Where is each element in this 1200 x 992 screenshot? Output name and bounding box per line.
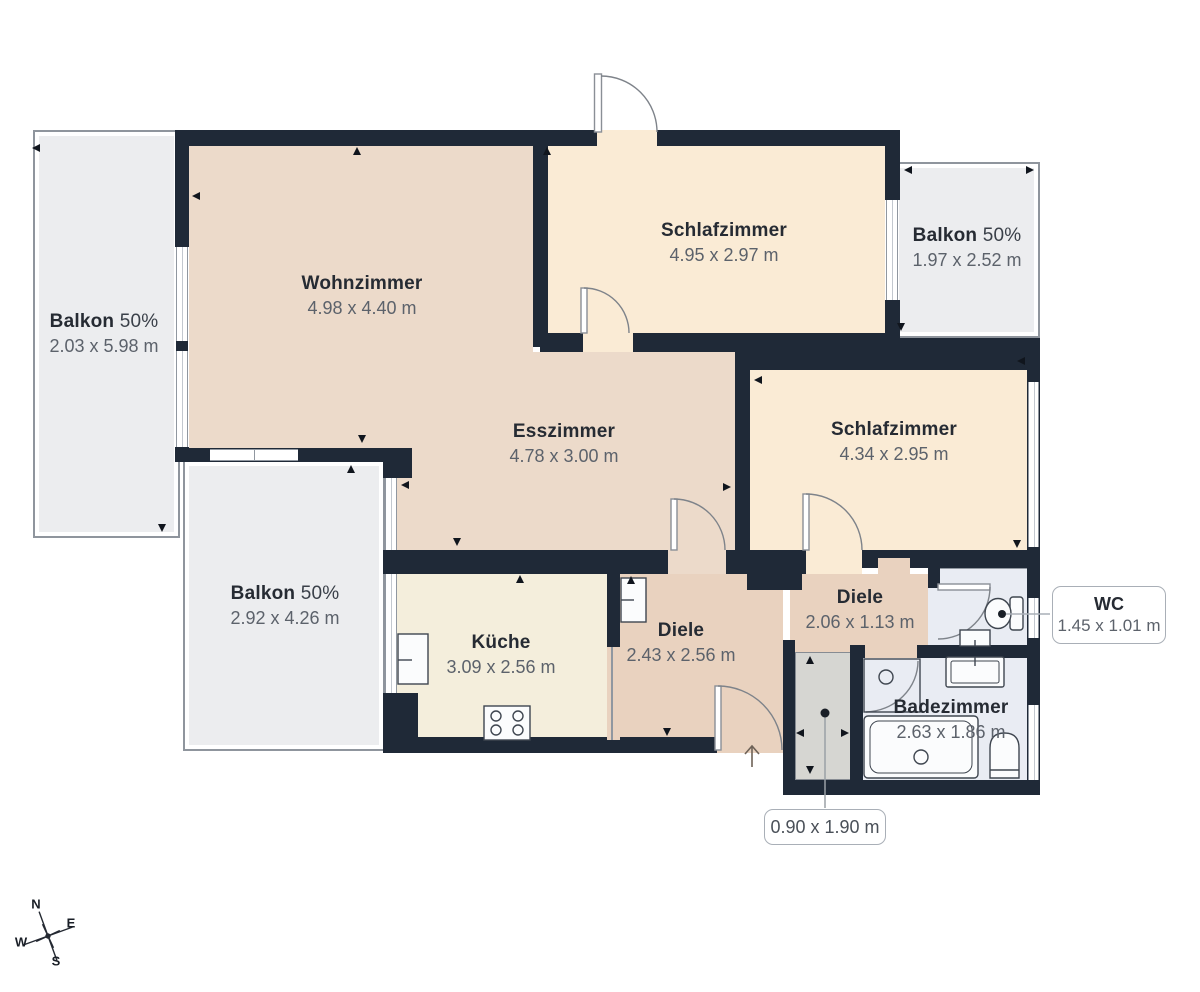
room-dimensions: 4.95 x 2.97 m xyxy=(661,245,787,266)
wall-segment xyxy=(726,550,806,574)
room-name: Schlafzimmer xyxy=(661,220,787,242)
window-divider xyxy=(176,341,188,351)
window xyxy=(1028,598,1039,638)
balcony-word: Balkon xyxy=(913,225,978,246)
door-opening xyxy=(668,550,726,574)
balcony-dimensions: 1.97 x 2.52 m xyxy=(912,250,1021,271)
balcony-door-window xyxy=(886,200,898,300)
label-badezimmer: Badezimmer 2.63 x 1.86 m xyxy=(894,697,1009,743)
room-dimensions: 2.06 x 1.13 m xyxy=(805,612,914,633)
wall-segment xyxy=(850,645,863,785)
room-name: Esszimmer xyxy=(509,421,618,443)
room-wc-floor xyxy=(938,568,1027,645)
compass-north-label: N xyxy=(31,897,40,912)
room-dimensions: 3.09 x 2.56 m xyxy=(446,657,555,678)
wall-segment xyxy=(783,640,795,795)
compass-east-label: E xyxy=(67,916,76,931)
wall-segment xyxy=(928,568,940,588)
label-wohnzimmer: Wohnzimmer 4.98 x 4.40 m xyxy=(302,273,423,319)
door-opening xyxy=(928,588,940,645)
window xyxy=(385,574,397,693)
wall-segment xyxy=(750,352,1040,370)
label-schlafzimmer-1: Schlafzimmer 4.95 x 2.97 m xyxy=(661,220,787,266)
room-dimensions: 4.98 x 4.40 m xyxy=(302,298,423,319)
wall-segment xyxy=(175,130,189,247)
floor-plan: Wohnzimmer 4.98 x 4.40 m Schlafzimmer 4.… xyxy=(0,0,1200,992)
door-top-entry xyxy=(595,74,658,132)
window xyxy=(1028,382,1039,547)
wall-segment xyxy=(383,693,418,740)
wall-segment xyxy=(533,130,548,347)
balcony-name: Balkon 50% xyxy=(230,583,339,605)
room-name: Schlafzimmer xyxy=(831,419,957,441)
door-opening xyxy=(597,130,657,146)
door-opening xyxy=(865,645,917,658)
balcony-name: Balkon 50% xyxy=(49,311,158,333)
open-passage xyxy=(607,647,620,740)
balcony-share: 50% xyxy=(120,311,159,332)
wc-callout-title: WC xyxy=(1053,594,1165,615)
wc-callout-dimensions: 1.45 x 1.01 m xyxy=(1053,616,1165,636)
label-balkon-left: Balkon 50% 2.03 x 5.98 m xyxy=(49,311,158,357)
wall-niche xyxy=(878,558,910,574)
door-opening xyxy=(583,333,633,352)
room-dimensions: 4.34 x 2.95 m xyxy=(831,444,957,465)
label-balkon-bottom-left: Balkon 50% 2.92 x 4.26 m xyxy=(230,583,339,629)
label-esszimmer: Esszimmer 4.78 x 3.00 m xyxy=(509,421,618,467)
entrance-niche-area xyxy=(795,652,855,780)
niche-callout-dimensions: 0.90 x 1.90 m xyxy=(765,817,885,838)
wall-segment xyxy=(633,333,897,352)
window xyxy=(385,478,397,550)
window xyxy=(1028,705,1039,780)
balcony-word: Balkon xyxy=(231,583,296,604)
entrance-niche-callout: 0.90 x 1.90 m xyxy=(764,809,886,845)
room-name: Wohnzimmer xyxy=(302,273,423,295)
compass-west-label: W xyxy=(15,935,27,950)
door-opening xyxy=(717,737,783,753)
wall-segment xyxy=(383,550,668,574)
compass-icon xyxy=(24,912,73,961)
wall-segment xyxy=(607,574,620,647)
window xyxy=(210,449,298,461)
balcony-name: Balkon 50% xyxy=(912,225,1021,247)
wall-segment xyxy=(383,737,717,753)
room-name: Diele xyxy=(805,587,914,609)
wall-segment xyxy=(383,462,412,478)
wall-segment xyxy=(657,130,900,146)
room-name: Küche xyxy=(446,632,555,654)
wall-segment xyxy=(540,333,583,352)
room-name: Badezimmer xyxy=(894,697,1009,719)
compass-south-label: S xyxy=(52,954,61,969)
wc-callout: WC 1.45 x 1.01 m xyxy=(1052,586,1166,644)
balcony-dimensions: 2.92 x 4.26 m xyxy=(230,608,339,629)
label-kueche: Küche 3.09 x 2.56 m xyxy=(446,632,555,678)
label-schlafzimmer-2: Schlafzimmer 4.34 x 2.95 m xyxy=(831,419,957,465)
balcony-dimensions: 2.03 x 5.98 m xyxy=(49,336,158,357)
label-diele-2: Diele 2.06 x 1.13 m xyxy=(805,587,914,633)
threshold-line xyxy=(611,647,613,740)
balcony-share: 50% xyxy=(301,583,340,604)
wall-segment xyxy=(735,352,750,574)
room-name: Diele xyxy=(626,620,735,642)
room-dimensions: 2.43 x 2.56 m xyxy=(626,645,735,666)
label-diele-1: Diele 2.43 x 2.56 m xyxy=(626,620,735,666)
door-opening xyxy=(806,550,862,574)
wall-segment xyxy=(885,130,900,200)
room-dimensions: 4.78 x 3.00 m xyxy=(509,446,618,467)
balcony-share: 50% xyxy=(983,225,1022,246)
wall-segment xyxy=(850,780,1040,795)
label-balkon-top-right: Balkon 50% 1.97 x 2.52 m xyxy=(912,225,1021,271)
wall-segment xyxy=(747,574,802,590)
room-dimensions: 2.63 x 1.86 m xyxy=(894,722,1009,743)
balcony-word: Balkon xyxy=(50,311,115,332)
